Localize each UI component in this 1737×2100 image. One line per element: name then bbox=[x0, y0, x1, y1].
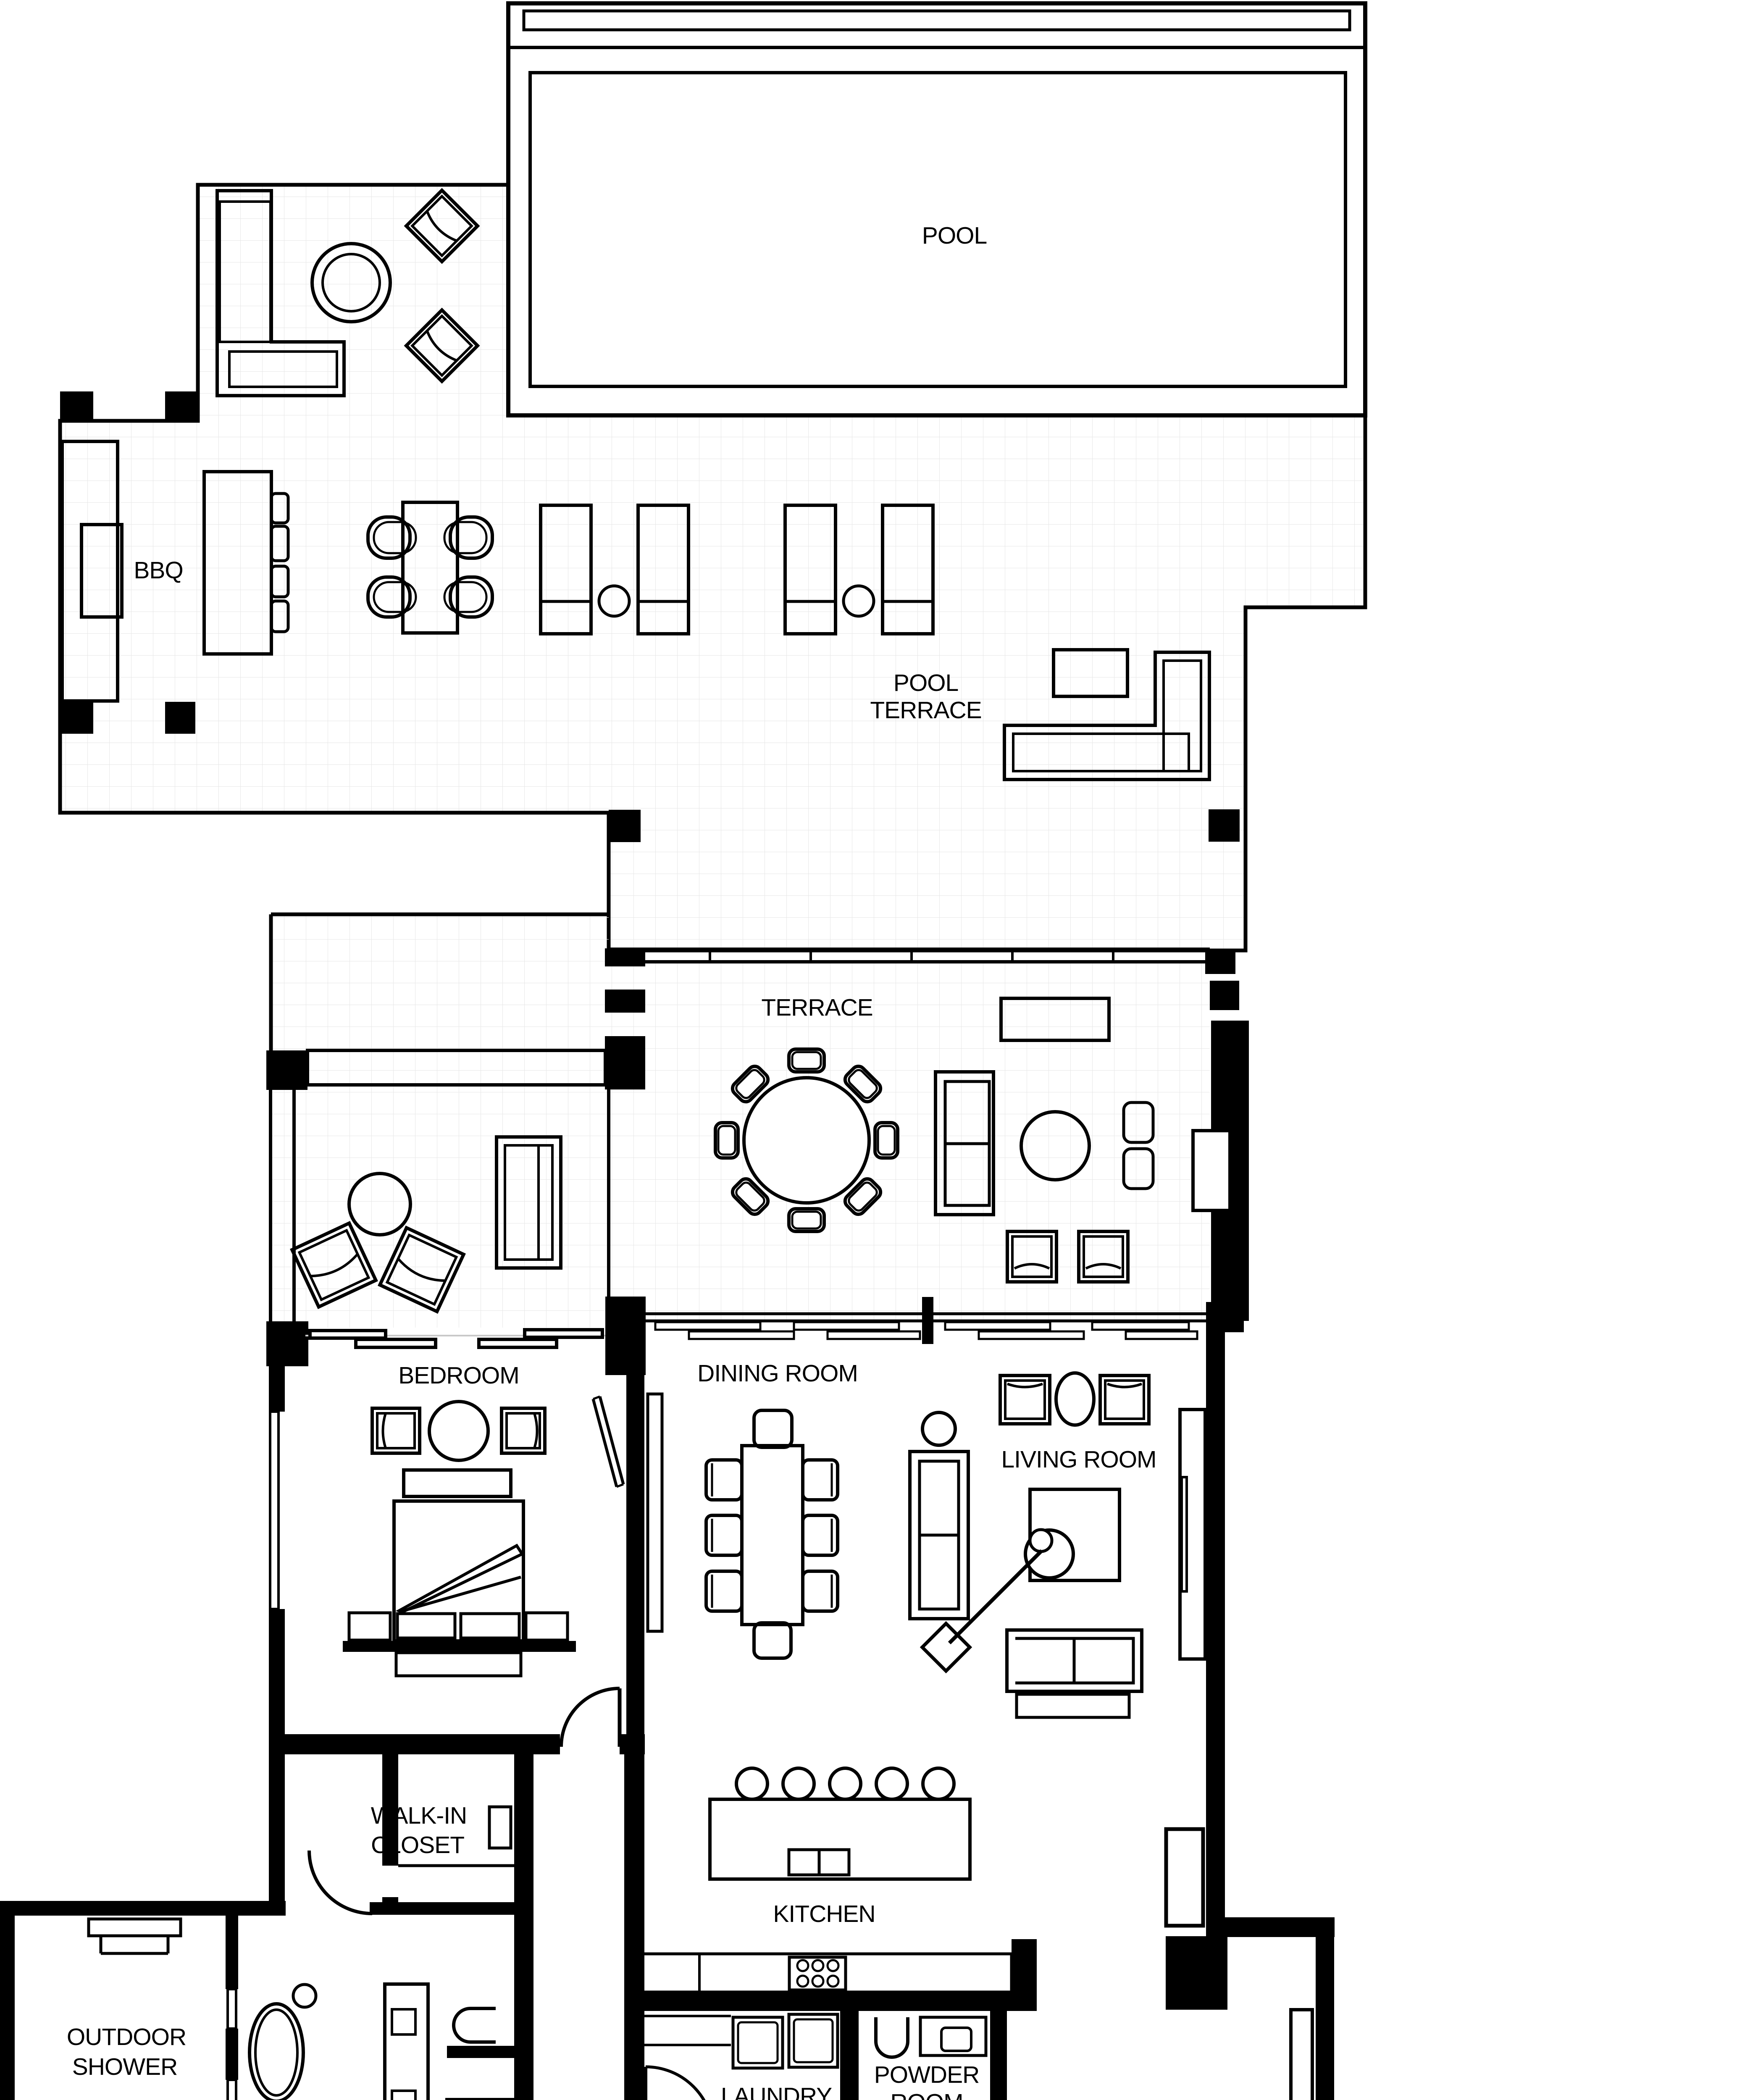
svg-text:BBQ: BBQ bbox=[134, 557, 183, 584]
svg-text:SHOWER: SHOWER bbox=[72, 2053, 178, 2080]
svg-text:WALK-IN: WALK-IN bbox=[371, 1802, 467, 1829]
svg-text:POOL: POOL bbox=[893, 669, 958, 696]
svg-text:TERRACE: TERRACE bbox=[761, 994, 872, 1021]
svg-text:CLOSET: CLOSET bbox=[371, 1832, 464, 1858]
svg-text:OUTDOOR: OUTDOOR bbox=[67, 2024, 186, 2050]
svg-text:KITCHEN: KITCHEN bbox=[773, 1900, 875, 1927]
svg-text:LAUNDRY: LAUNDRY bbox=[721, 2083, 832, 2100]
svg-text:POOL: POOL bbox=[922, 222, 987, 249]
svg-text:POWDER: POWDER bbox=[874, 2061, 980, 2088]
svg-text:BEDROOM: BEDROOM bbox=[398, 1362, 519, 1389]
svg-text:LIVING ROOM: LIVING ROOM bbox=[1001, 1446, 1156, 1473]
svg-text:ROOM: ROOM bbox=[890, 2089, 963, 2100]
svg-text:DINING ROOM: DINING ROOM bbox=[697, 1360, 858, 1387]
svg-text:TERRACE: TERRACE bbox=[870, 697, 981, 724]
